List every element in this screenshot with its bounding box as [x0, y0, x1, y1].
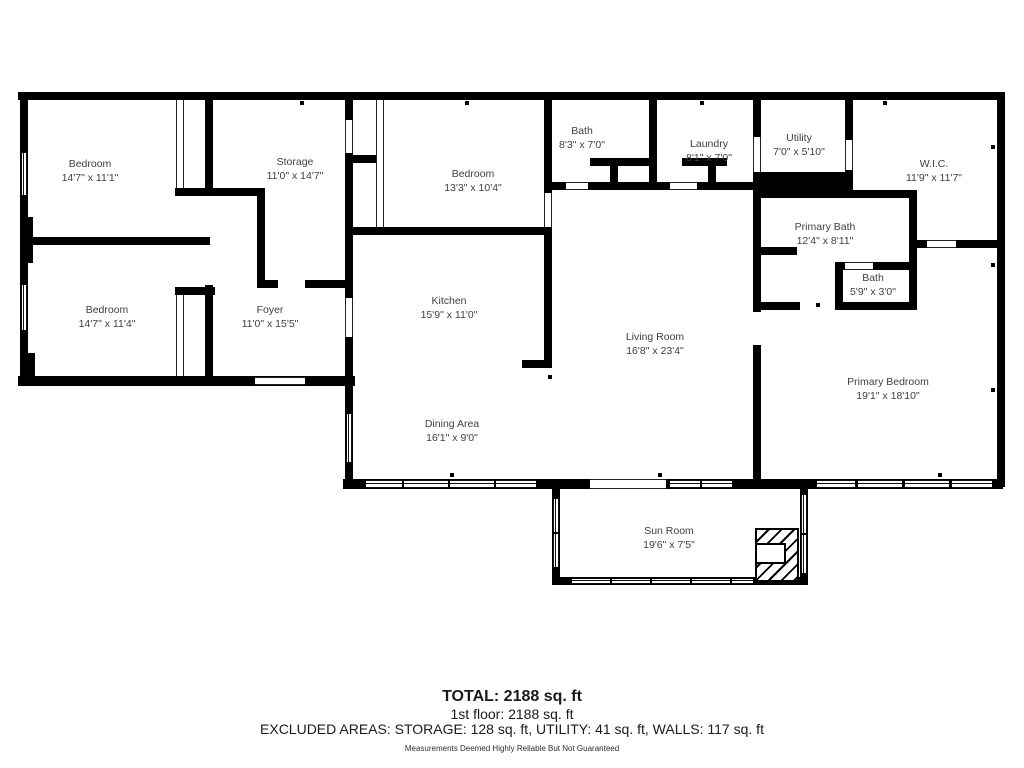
- window: [496, 480, 536, 488]
- window: [817, 480, 855, 488]
- room-label-primary-bath: Primary Bath 12'4" x 8'11": [795, 220, 856, 248]
- wall-primary-bath-stub: [758, 247, 797, 255]
- room-dims: 16'8" x 23'4": [626, 344, 684, 358]
- room-dims: 14'7" x 11'4": [79, 317, 136, 331]
- window: [553, 534, 559, 567]
- dimension-tick: [991, 263, 995, 267]
- wall-utility-right: [845, 92, 853, 140]
- wall-laundry-bottom: [649, 182, 670, 190]
- room-dims: 8'1" x 7'0": [686, 151, 732, 165]
- room-dims: 11'9" x 11'7": [906, 171, 962, 185]
- room-dims: 16'1" x 9'0": [425, 431, 479, 445]
- closet-door-opening: [176, 100, 184, 188]
- door-opening: [345, 298, 353, 337]
- fireplace-insert: [755, 543, 786, 564]
- room-label-primary-bedroom: Primary Bedroom 19'1" x 18'10": [847, 375, 929, 403]
- room-name: Dining Area: [425, 417, 479, 431]
- wall-kitchen-right: [544, 227, 552, 368]
- dimension-tick: [700, 101, 704, 105]
- room-dims: 13'3" x 10'4": [444, 181, 502, 195]
- room-name: Storage: [267, 155, 324, 169]
- wall-closet-stub: [175, 287, 215, 295]
- wall-bath1-bottom: [588, 182, 649, 190]
- wall-kitchen-stub: [522, 360, 546, 368]
- room-label-storage: Storage 11'0" x 14'7": [267, 155, 324, 183]
- dimension-tick: [991, 388, 995, 392]
- floor-plan: Bedroom 14'7" x 11'1" Storage 11'0" x 14…: [0, 0, 1024, 768]
- room-name: Utility: [773, 131, 825, 145]
- wall-bedroom1-right: [205, 92, 213, 188]
- room-label-living: Living Room 16'8" x 23'4": [626, 330, 684, 358]
- wall-bath2-bottom: [835, 302, 917, 310]
- wall-bath1-right: [649, 92, 657, 190]
- wall-foyer-top: [257, 280, 278, 288]
- window: [612, 578, 650, 584]
- room-name: Primary Bedroom: [847, 375, 929, 389]
- room-dims: 7'0" x 5'10": [773, 145, 825, 159]
- room-name: Bath: [559, 124, 605, 138]
- dimension-tick: [207, 150, 211, 154]
- dimension-tick: [991, 145, 995, 149]
- wall-bath1-fixture: [590, 158, 657, 166]
- patio-door-opening: [590, 479, 666, 489]
- wall-bath2-top: [873, 262, 917, 270]
- room-label-kitchen: Kitchen 15'9" x 11'0": [421, 294, 478, 322]
- room-name: Primary Bath: [795, 220, 856, 234]
- room-name: W.I.C.: [906, 157, 962, 171]
- wall-bedroom3-right: [205, 285, 213, 376]
- wall-primary-bath-bottom: [758, 302, 800, 310]
- room-dims: 12'4" x 8'11": [795, 234, 856, 248]
- room-name: Bedroom: [79, 303, 136, 317]
- room-dims: 11'0" x 14'7": [267, 169, 324, 183]
- wall-living-primary: [753, 198, 761, 312]
- wall-laundry-fixture: [708, 166, 716, 188]
- room-name: Kitchen: [421, 294, 478, 308]
- room-name: Sun Room: [643, 524, 695, 538]
- total-area-text: TOTAL: 2188 sq. ft: [0, 688, 1024, 706]
- dimension-tick: [300, 101, 304, 105]
- window: [404, 480, 448, 488]
- wall-laundry-utility: [753, 92, 761, 137]
- door-opening: [670, 182, 697, 190]
- room-name: Bath: [850, 271, 896, 285]
- window: [553, 499, 559, 532]
- room-name: Laundry: [686, 137, 732, 151]
- wall-left-pier: [20, 353, 35, 378]
- wall-mid: [345, 92, 353, 120]
- door-opening: [753, 137, 761, 172]
- wall-bath2-top: [835, 262, 845, 270]
- wall-living-primary: [753, 345, 761, 489]
- room-dims: 11'0" x 15'5": [242, 317, 299, 331]
- window: [858, 480, 902, 488]
- dimension-tick: [348, 294, 352, 298]
- door-opening: [566, 182, 588, 190]
- room-label-bedroom2: Bedroom 13'3" x 10'4": [444, 167, 502, 195]
- window: [670, 480, 700, 488]
- room-name: Living Room: [626, 330, 684, 344]
- room-label-bedroom3: Bedroom 14'7" x 11'4": [79, 303, 136, 331]
- room-label-sunroom: Sun Room 19'6" x 7'5": [643, 524, 695, 552]
- room-label-utility: Utility 7'0" x 5'10": [773, 131, 825, 159]
- closet-door-opening: [176, 295, 184, 376]
- wall-closet-bottom: [175, 188, 265, 196]
- window: [801, 535, 807, 573]
- window: [346, 414, 352, 462]
- room-label-foyer: Foyer 11'0" x 15'5": [242, 303, 299, 331]
- wall-bath1-fixture: [610, 166, 618, 190]
- dimension-tick: [465, 101, 469, 105]
- room-label-bath2: Bath 5'9" x 3'0": [850, 271, 896, 299]
- utility-shaft-block: [758, 172, 853, 190]
- door-opening: [927, 240, 956, 248]
- window: [21, 153, 27, 195]
- window: [572, 578, 610, 584]
- dimension-tick: [938, 473, 942, 477]
- dimension-tick: [548, 375, 552, 379]
- door-opening: [544, 193, 552, 227]
- room-dims: 8'3" x 7'0": [559, 138, 605, 152]
- dimension-tick: [658, 473, 662, 477]
- disclaimer-text: Measurements Deemed Highly Reliable But …: [0, 744, 1024, 753]
- dimension-tick: [816, 303, 820, 307]
- room-label-dining: Dining Area 16'1" x 9'0": [425, 417, 479, 445]
- excluded-areas-text: EXCLUDED AREAS: STORAGE: 128 sq. ft, UTI…: [0, 721, 1024, 737]
- room-dims: 14'7" x 11'1": [62, 171, 119, 185]
- closet-door-opening: [376, 100, 384, 227]
- front-door-opening: [255, 377, 305, 385]
- wall-kitchen-top: [345, 227, 548, 235]
- window: [905, 480, 949, 488]
- window: [692, 578, 730, 584]
- floor-area-text: 1st floor: 2188 sq. ft: [0, 706, 1024, 722]
- wall-wic-bottom: [917, 240, 927, 248]
- door-opening: [345, 120, 353, 153]
- window: [952, 480, 992, 488]
- window: [366, 480, 402, 488]
- room-label-laundry: Laundry 8'1" x 7'0": [686, 137, 732, 165]
- wall-mid: [345, 153, 353, 298]
- room-dims: 5'9" x 3'0": [850, 285, 896, 299]
- room-dims: 15'9" x 11'0": [421, 308, 478, 322]
- wall-hall-right: [257, 188, 265, 288]
- door-opening: [845, 262, 873, 270]
- wall-bath1-bottom: [552, 182, 566, 190]
- wall-bedroom2-right: [544, 92, 552, 193]
- door-opening: [845, 140, 853, 170]
- window: [21, 285, 27, 330]
- window: [702, 480, 732, 488]
- wall-mid: [345, 337, 353, 382]
- room-label-bath1: Bath 8'3" x 7'0": [559, 124, 605, 152]
- wall-right: [997, 92, 1005, 487]
- room-name: Bedroom: [62, 157, 119, 171]
- dimension-tick: [883, 101, 887, 105]
- window: [450, 480, 494, 488]
- window: [732, 578, 753, 584]
- wall-wic-left: [909, 198, 917, 310]
- dimension-tick: [450, 473, 454, 477]
- window: [652, 578, 690, 584]
- room-name: Foyer: [242, 303, 299, 317]
- room-label-bedroom1: Bedroom 14'7" x 11'1": [62, 157, 119, 185]
- room-dims: 19'1" x 18'10": [847, 389, 929, 403]
- wall-bedroom-divider: [26, 237, 210, 245]
- room-name: Bedroom: [444, 167, 502, 181]
- wall-wic-bottom: [956, 240, 997, 248]
- wall-top: [18, 92, 1005, 100]
- window: [801, 495, 807, 533]
- room-dims: 19'6" x 7'5": [643, 538, 695, 552]
- wall-primary-bath-top: [753, 190, 917, 198]
- room-label-wic: W.I.C. 11'9" x 11'7": [906, 157, 962, 185]
